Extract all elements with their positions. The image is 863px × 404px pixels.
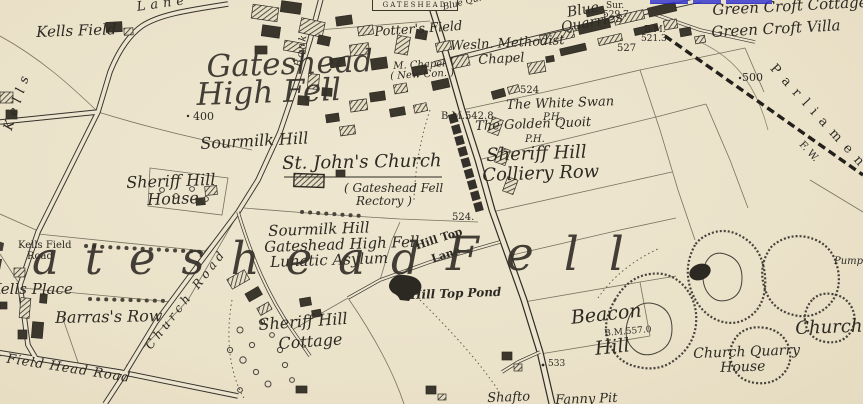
label-rectory-2: Rectory ) — [356, 195, 412, 207]
parliament-boundary-line — [665, 36, 863, 175]
label-pump: Pump — [834, 257, 863, 267]
label-white-swan: The White Swan — [506, 95, 614, 112]
label-spot-400: 400 — [193, 111, 214, 122]
label-barrass-row: Barras's Row — [55, 308, 163, 326]
label-spot-527: 527 — [617, 44, 636, 54]
label-gateshead-high-fell-2: High Fell — [196, 75, 342, 111]
label-sheriff-hill-house-1: Sheriff Hill — [126, 172, 216, 191]
label-methodist-2: Chapel — [478, 52, 525, 67]
map-canvas: Kells Field Kells Lane Gateshead High Fe… — [0, 0, 863, 404]
label-spot-524-road: 524. — [452, 213, 474, 223]
parish-name-fell-stretched: Fell — [446, 231, 654, 278]
label-spot-533: 533 — [548, 360, 565, 369]
label-rectory-1: ( Gateshead Fell — [344, 182, 443, 194]
label-bm-521-2: 521.3 — [641, 35, 667, 44]
label-golden-quoit: The Golden Quoit — [475, 116, 591, 133]
label-fanny-pit: Fanny Pit — [555, 392, 618, 404]
label-sur-value: 529.7 — [603, 11, 629, 20]
label-spot-500: 500 — [742, 72, 763, 83]
label-church-east: Church — [795, 318, 863, 338]
label-shafto: Shafto — [487, 391, 530, 404]
label-sheriff-hill-cottage-2: Cottage — [278, 332, 343, 352]
label-beacon-hill-2: Hill — [594, 336, 631, 359]
trees — [86, 187, 362, 393]
parish-name-gateshead-stretched: Gateshead — [0, 236, 446, 281]
label-sheriff-hill-house-2: House — [147, 190, 199, 208]
label-hill-top-pond: Hill Top Pond — [410, 286, 502, 301]
label-spot-524-north: 524 — [520, 86, 539, 96]
clipped-hyperlink[interactable] — [650, 0, 772, 4]
label-st-johns-church: St. John's Church — [282, 152, 442, 173]
label-church-quarry-house-2: House — [720, 359, 766, 375]
label-colliery-2: Colliery Row — [482, 163, 599, 185]
label-kells-field: Kells Field — [36, 22, 117, 40]
adjacent-sheet-label: GATESHEAD — [383, 2, 448, 9]
